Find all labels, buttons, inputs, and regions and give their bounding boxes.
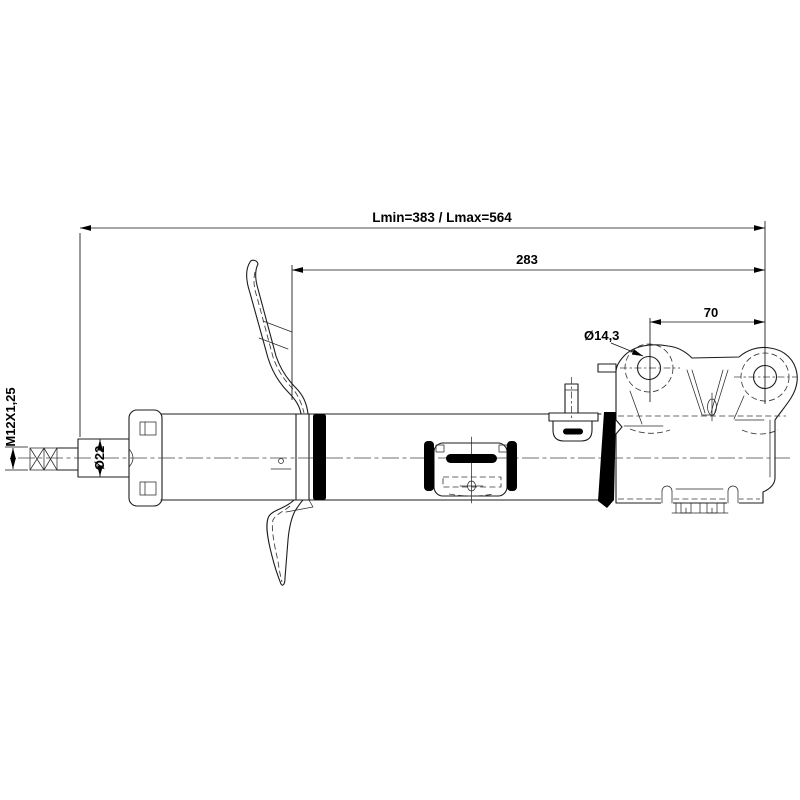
dimension-thread-spec: M12X1,25: [3, 387, 18, 469]
dimension-upper-length: 283: [292, 252, 765, 270]
rod-diameter-label: Ø22: [92, 446, 107, 471]
tube-end-band: [598, 412, 616, 508]
hole-diameter-label: Ø14,3: [584, 328, 619, 343]
dimension-hole-spacing: 70: [650, 305, 765, 322]
hole-spacing-label: 70: [704, 305, 718, 320]
bump-stop-band: [313, 414, 326, 500]
thread-spec-label: M12X1,25: [3, 387, 18, 446]
dimension-overall-length: Lmin=383 / Lmax=564: [80, 210, 765, 228]
reserve-tube: [161, 414, 601, 500]
tube-clamp: [434, 437, 507, 503]
clamp-bar: [446, 454, 497, 463]
spring-seat: [247, 260, 313, 585]
overall-length-label: Lmin=383 / Lmax=564: [372, 210, 512, 225]
upper-length-label: 283: [516, 252, 538, 267]
thread-hatch: [30, 448, 57, 470]
strut-technical-drawing: Lmin=383 / Lmax=564 283 70 Ø14,3 M12X1,2…: [0, 0, 800, 800]
hose-bracket-slot: [563, 429, 583, 435]
clamp-ring-left: [424, 441, 434, 491]
clamp-ring-right: [507, 441, 517, 491]
bottom-tabs: [672, 503, 728, 513]
knuckle-bracket: [598, 344, 797, 513]
